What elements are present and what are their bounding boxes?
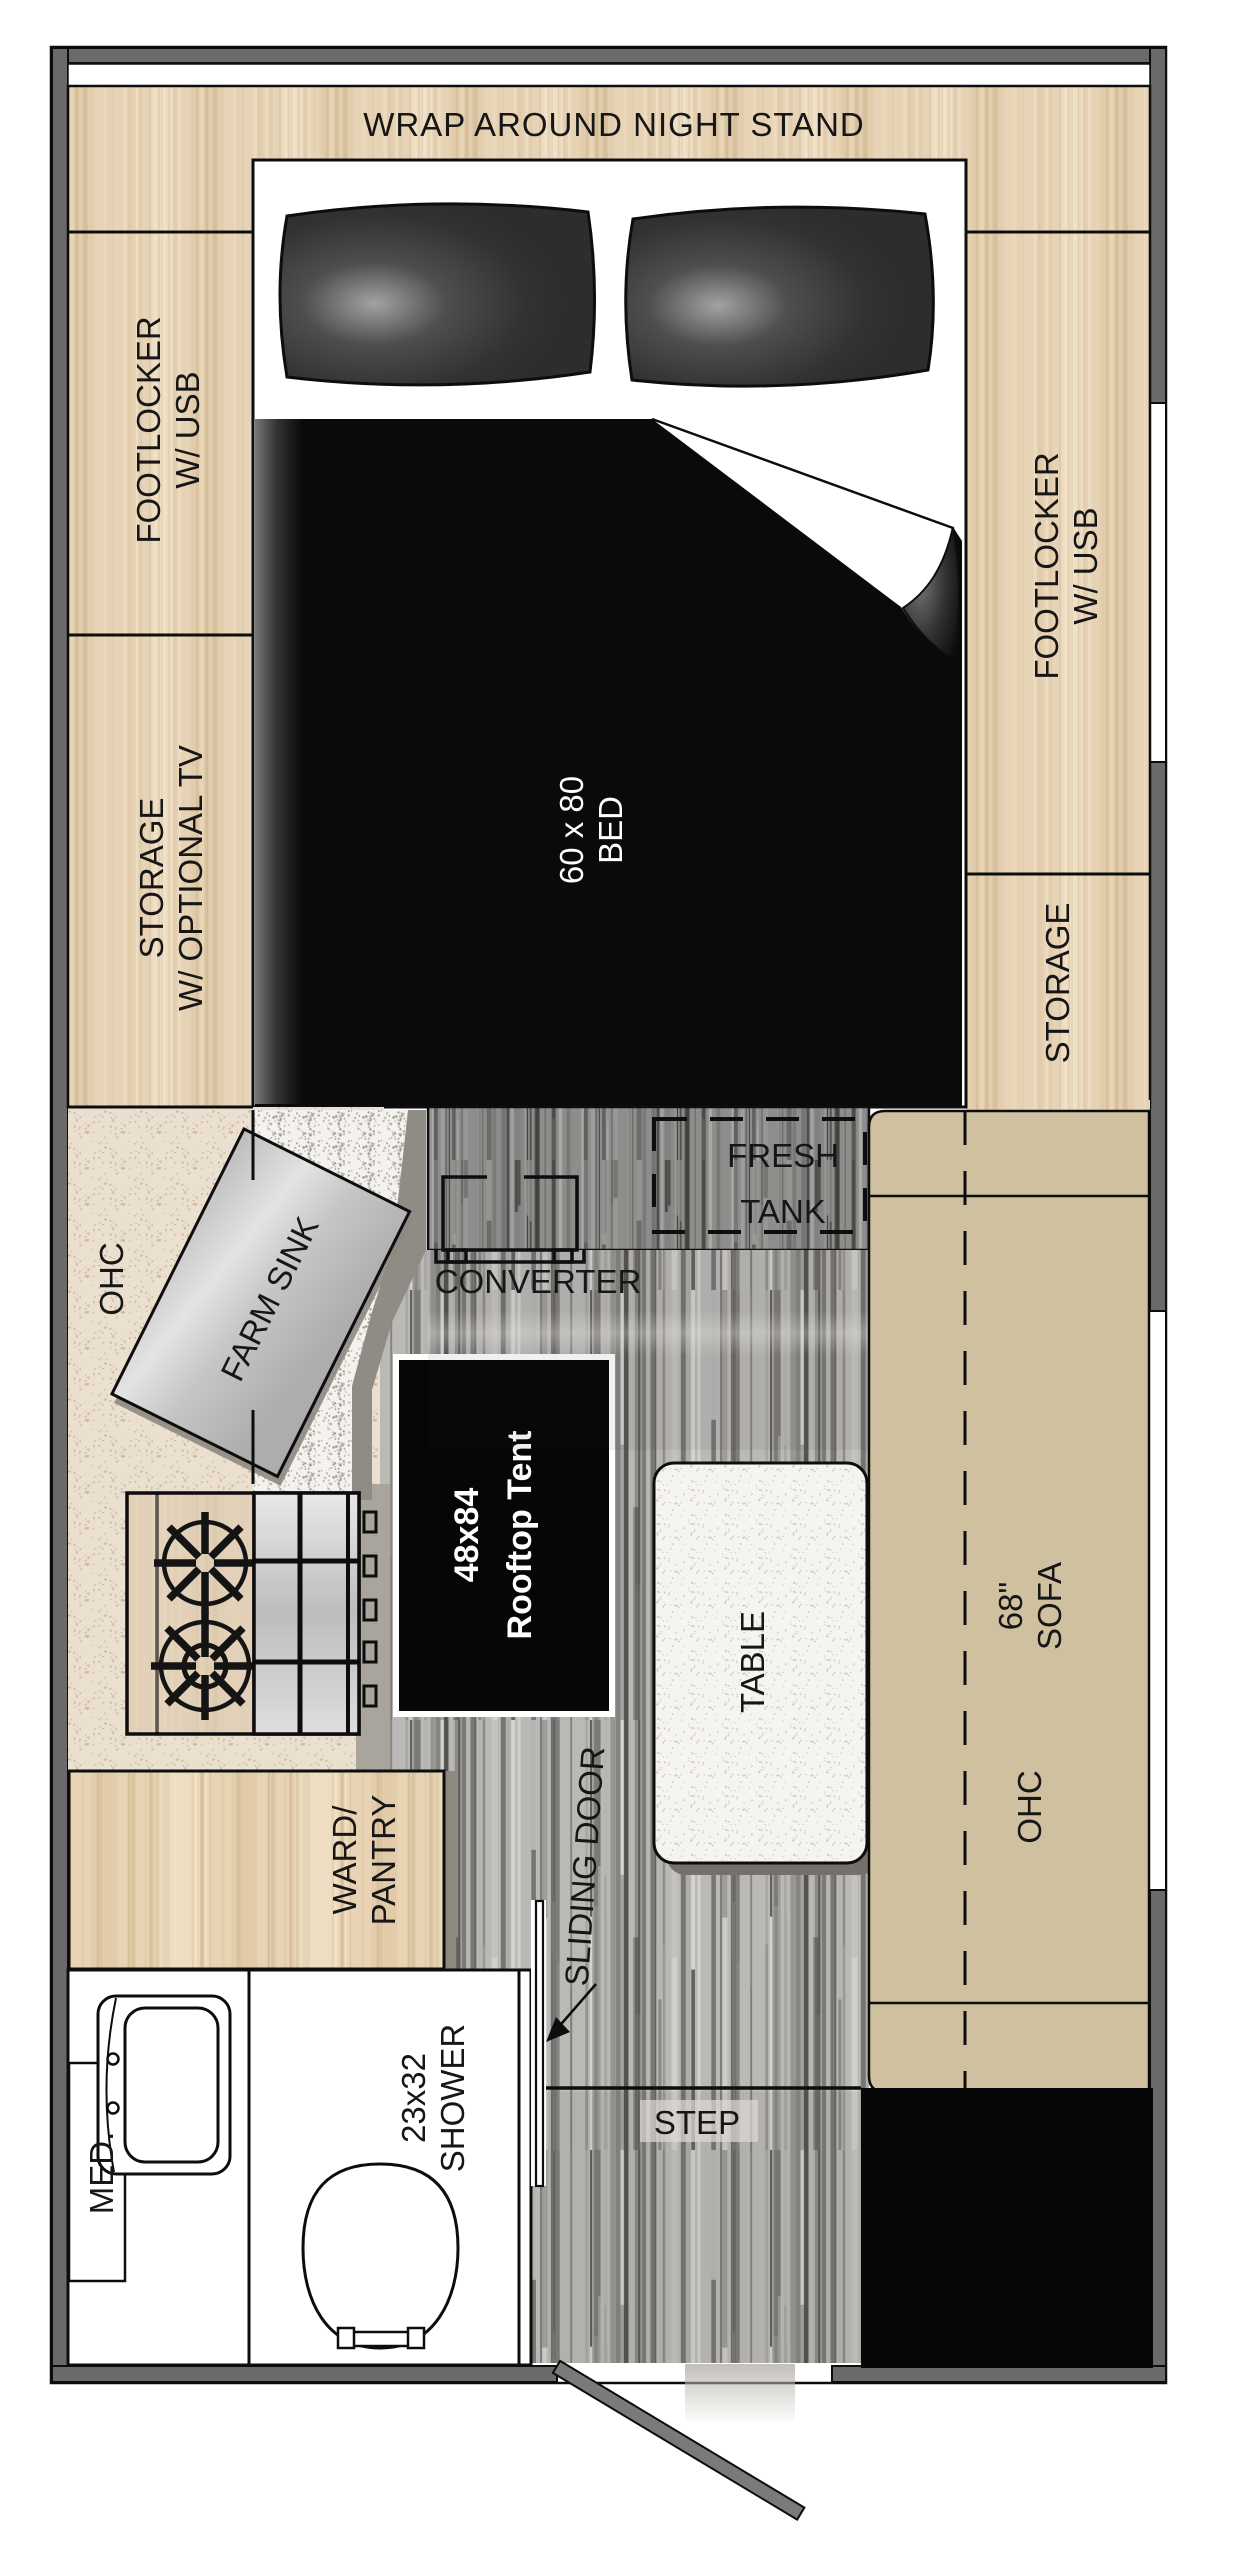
svg-text:FRESH: FRESH: [727, 1137, 839, 1174]
svg-text:OHC: OHC: [93, 1242, 130, 1315]
svg-text:WRAP AROUND NIGHT STAND: WRAP AROUND NIGHT STAND: [363, 106, 865, 143]
svg-text:TANK: TANK: [740, 1193, 826, 1230]
svg-text:TABLE: TABLE: [734, 1611, 771, 1713]
svg-text:MED.: MED.: [83, 2132, 120, 2215]
svg-text:STEP: STEP: [654, 2104, 740, 2141]
svg-text:OHC: OHC: [1011, 1770, 1048, 1843]
svg-text:STORAGE: STORAGE: [1039, 903, 1076, 1064]
